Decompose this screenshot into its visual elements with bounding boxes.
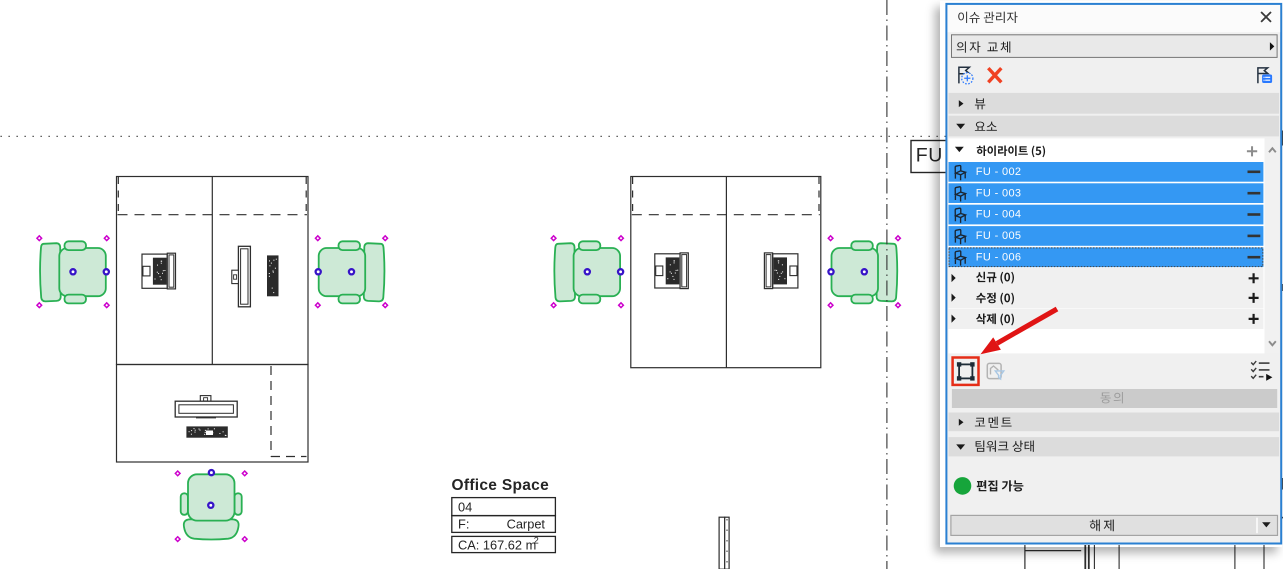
svg-text:FU - 004: FU - 004: [976, 209, 1022, 221]
svg-text:FU - 005: FU - 005: [976, 230, 1022, 242]
svg-text:FU - 006: FU - 006: [976, 251, 1022, 263]
svg-text:FU - 002: FU - 002: [976, 166, 1022, 178]
svg-text:FU - 003: FU - 003: [976, 187, 1022, 199]
